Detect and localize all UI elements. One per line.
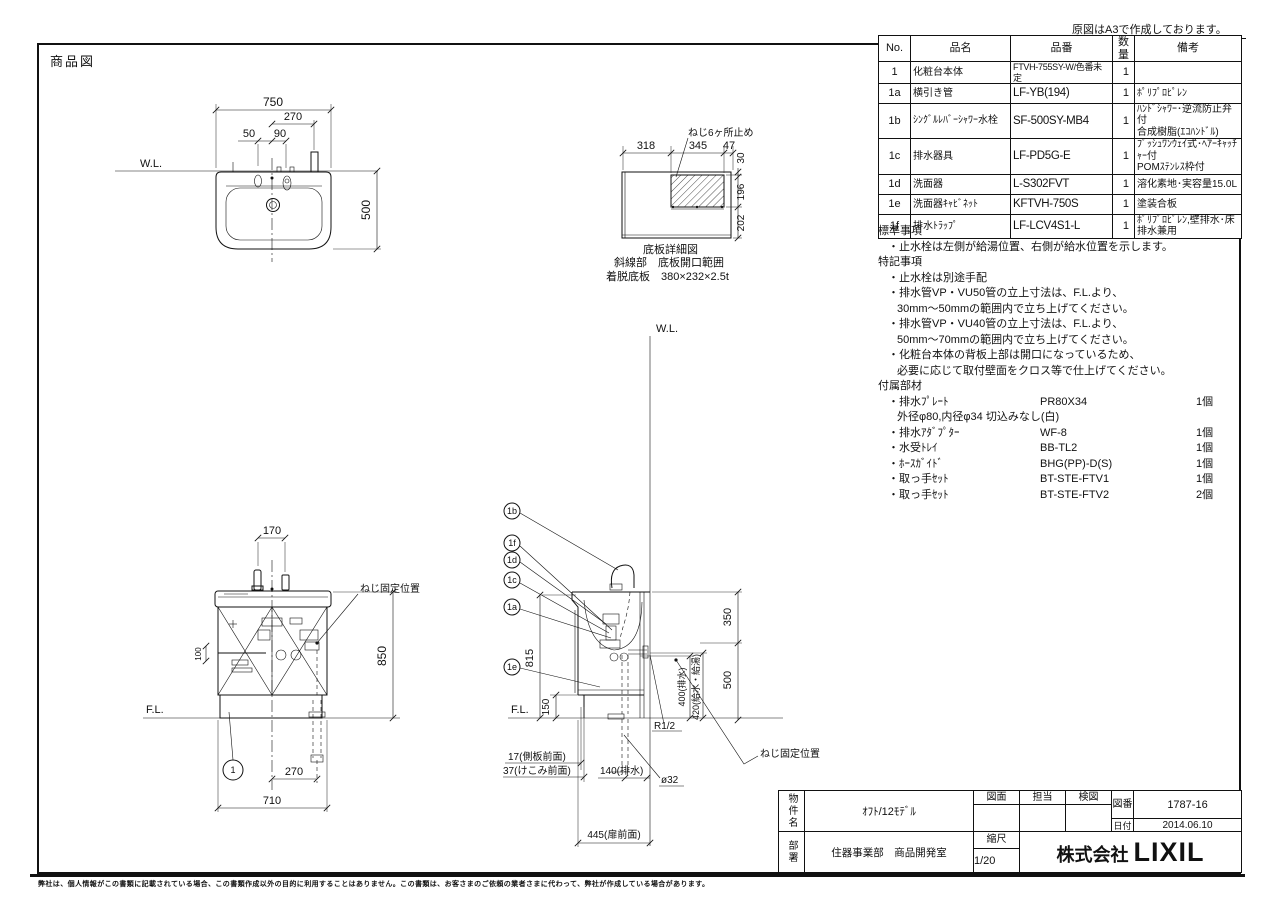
dim-196: 196 [736, 183, 747, 200]
balloon-1b: 1b [507, 506, 517, 516]
dim-850: 850 [375, 646, 389, 666]
dim-140: 140(排水) [600, 764, 643, 777]
balloon-1d: 1d [507, 555, 517, 565]
side-view: W.L. 1b 1f 1d 1c 1a 1 [503, 323, 820, 847]
balloon-1c: 1c [507, 575, 517, 585]
dim-37: 37(けこみ前面) [503, 764, 571, 777]
balloon-1: 1 [230, 765, 235, 775]
dim-100: 100 [194, 647, 203, 661]
dim-500: 500 [359, 200, 373, 220]
dim-420-supply: 420(給水・給湯) [690, 654, 701, 720]
dim-750: 750 [263, 95, 283, 109]
wl-label: W.L. [656, 323, 678, 335]
plate-note: 着脱底板 380×232×2.5t [606, 269, 729, 283]
fl-label: F.L. [146, 704, 164, 716]
r12-label: R1/2 [654, 721, 676, 732]
dim-50: 50 [243, 128, 255, 140]
dia-32: ø32 [661, 775, 679, 786]
dim-202: 202 [736, 214, 747, 231]
fl-label: F.L. [511, 704, 529, 716]
dim-90: 90 [274, 128, 286, 140]
screw-position-label: ねじ固定位置 [360, 582, 420, 595]
dim-350: 350 [722, 608, 734, 626]
dim-270: 270 [284, 111, 302, 123]
balloon-1f: 1f [508, 538, 516, 548]
dim-445: 445(扉前面) [587, 828, 640, 841]
dim-815: 815 [524, 649, 536, 667]
dim-170: 170 [263, 525, 281, 537]
detail-caption: 底板詳細図 [643, 242, 698, 256]
dim-47: 47 [723, 140, 735, 152]
dim-270: 270 [285, 766, 303, 778]
dim-345: 345 [689, 140, 707, 152]
screw-position-label: ねじ固定位置 [760, 747, 820, 760]
bottom-plate-detail: ねじ6ヶ所止め 318 345 47 30 196 202 底板詳細図 斜線部 … [606, 127, 754, 283]
dim-500: 500 [722, 671, 734, 689]
balloon-1e: 1e [507, 662, 517, 672]
dim-30: 30 [736, 152, 747, 164]
technical-drawing: W.L. 750 270 50 90 500 [0, 0, 1275, 903]
front-view: 100 170 ねじ固定位置 850 F.L. 1 270 [143, 525, 420, 812]
dim-400-drain: 400(排水) [676, 667, 687, 706]
wl-label: W.L. [140, 158, 162, 170]
plan-view: W.L. 750 270 50 90 500 [115, 95, 381, 262]
dim-710: 710 [263, 795, 281, 807]
hatch-note: 斜線部 底板開口範囲 [614, 255, 724, 269]
dim-150: 150 [541, 698, 552, 715]
dim-318: 318 [637, 140, 655, 152]
balloon-1a: 1a [507, 602, 517, 612]
dim-17: 17(側板前面) [508, 750, 566, 763]
screw-note: ねじ6ヶ所止め [688, 127, 754, 139]
